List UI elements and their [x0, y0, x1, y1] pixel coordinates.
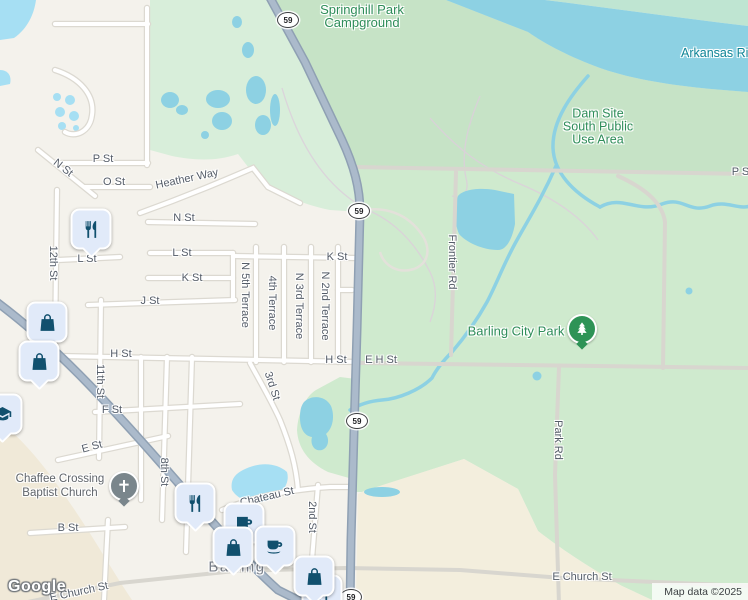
label-springhill-park-campground: Springhill Park Campground [320, 3, 404, 29]
shopping-bag-icon [304, 566, 324, 586]
street-label-11th-st: 11th St [94, 364, 106, 398]
shopping-bag-icon [223, 537, 243, 557]
shopping-pin-2[interactable] [19, 341, 60, 382]
street-label-e-h-st: E H St [365, 354, 397, 366]
route-59-shield-upper: 59 [348, 203, 370, 219]
route-59-shield-lower: 59 [346, 413, 368, 429]
map-canvas[interactable]: P St P St O St N St Heather Way N St L S… [0, 0, 748, 600]
school-pin[interactable] [0, 394, 23, 435]
restaurant-pin-2[interactable] [175, 483, 216, 524]
dam-site-line3: Use Area [563, 134, 633, 147]
street-label-park-rd: Park Rd [552, 420, 564, 460]
street-label-b-st: B St [58, 522, 79, 534]
shopping-bag-icon [29, 351, 49, 371]
street-label-h-st-mid: H St [325, 354, 346, 366]
label-dam-site: Dam Site South Public Use Area [563, 108, 633, 147]
church-line2: Baptist Church [16, 486, 105, 500]
street-label-n-2nd-terrace: N 2nd Terrace [319, 272, 331, 341]
tree-icon [574, 321, 590, 337]
label-barling-city-park: Barling City Park [468, 325, 565, 338]
street-label-l-st: L St [172, 247, 191, 259]
shopping-pin-3[interactable] [213, 527, 254, 568]
springhill-line2: Campground [320, 16, 404, 29]
school-icon [0, 404, 12, 424]
shopping-bag-icon [37, 312, 57, 332]
street-label-f-st: F St [102, 404, 122, 416]
street-label-2nd-st: 2nd St [306, 501, 318, 533]
street-label-o-st: O St [103, 176, 125, 188]
park-tree-poi[interactable] [567, 314, 597, 344]
street-label-h-st: H St [110, 348, 131, 360]
restaurant-icon [185, 493, 205, 513]
street-label-k-st-east: K St [327, 251, 348, 263]
street-label-12th-st: 12th St [47, 246, 59, 281]
street-label-n-5th-terrace: N 5th Terrace [239, 262, 251, 328]
street-label-8th-st: 8th St [158, 458, 170, 487]
coffee-pin[interactable] [255, 526, 296, 567]
label-chaffee-crossing-baptist-church: Chaffee Crossing Baptist Church [16, 472, 105, 500]
shopping-pin-1[interactable] [27, 302, 68, 343]
route-59-shield-bottom: 59 [340, 589, 362, 600]
church-poi[interactable] [109, 471, 139, 501]
street-label-4th-terrace: 4th Terrace [266, 276, 278, 331]
street-label-p-st: P St [93, 153, 114, 165]
shopping-pin-4[interactable] [294, 556, 335, 597]
church-line1: Chaffee Crossing [16, 472, 105, 486]
street-label-n-3rd-terrace: N 3rd Terrace [293, 273, 305, 339]
google-logo[interactable]: Google [8, 578, 66, 596]
label-arkansas-river: Arkansas Riv [681, 46, 748, 60]
restaurant-icon [81, 219, 101, 239]
map-base-layer [0, 0, 748, 600]
street-label-frontier-rd: Frontier Rd [446, 234, 458, 289]
street-label-j-st: J St [141, 295, 160, 307]
route-59-shield-top: 59 [277, 12, 299, 28]
restaurant-pin-1[interactable] [71, 209, 112, 250]
street-label-k-st: K St [182, 272, 203, 284]
street-label-n-st: N St [173, 212, 194, 224]
coffee-cup-icon [265, 536, 285, 556]
map-attribution: Map data ©2025 [652, 583, 748, 600]
street-label-p-st-east: P St [732, 166, 748, 178]
street-label-e-church-st-east: E Church St [552, 571, 611, 583]
church-icon [116, 478, 132, 494]
